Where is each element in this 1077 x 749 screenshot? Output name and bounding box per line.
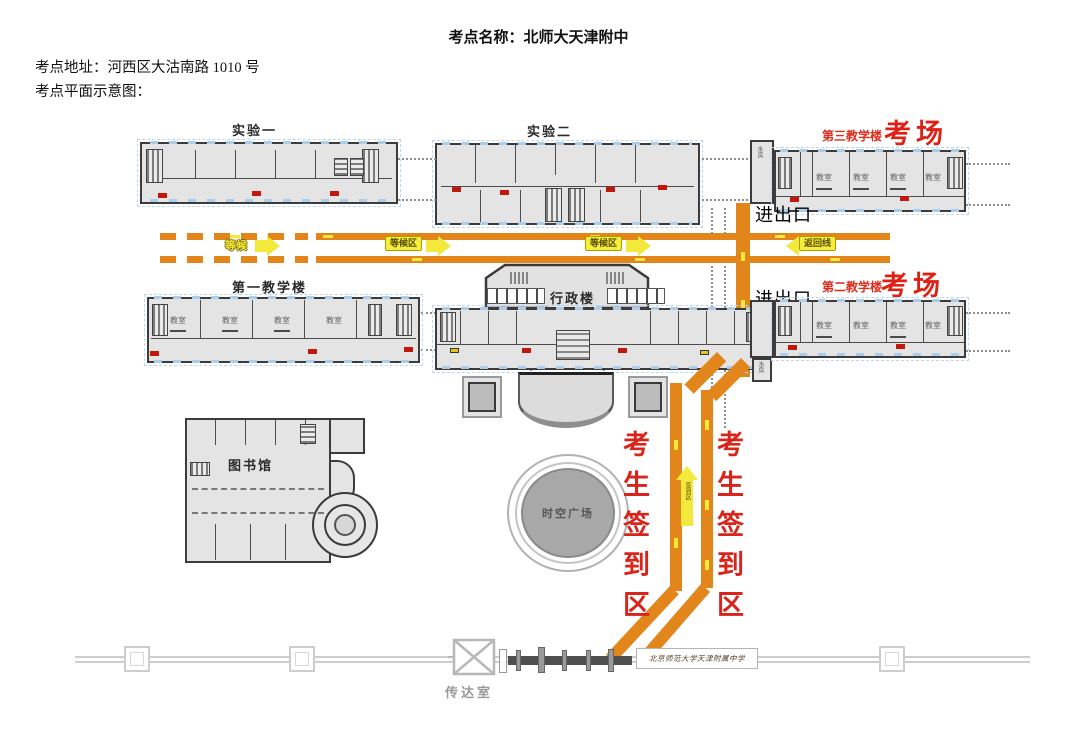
classroom-label: 教室 (925, 320, 941, 331)
door-mark (896, 344, 905, 349)
stairwell (350, 158, 364, 176)
classroom-label: 教室 (816, 320, 832, 331)
page-title: 考点名称：北师大天津附中 (0, 26, 1077, 47)
gate-mark (450, 348, 459, 353)
desk-line (890, 188, 906, 190)
route-tick (741, 252, 745, 261)
route-tick (323, 235, 333, 238)
stairwell (440, 312, 456, 342)
gate-post (538, 647, 545, 673)
gate-end-post (499, 649, 507, 673)
plaza-label: 时空广场 (542, 505, 594, 521)
door-mark (308, 349, 317, 354)
gate-post (562, 650, 567, 671)
door-mark (618, 348, 627, 353)
fence-post (124, 646, 150, 672)
gate-mark (700, 350, 709, 355)
wall-line (886, 302, 887, 342)
teaching3-connector (750, 140, 774, 204)
stairwell (368, 304, 382, 336)
door-mark (522, 348, 531, 353)
lab1-label: 实验一 (232, 120, 277, 139)
waiting-arrow (255, 240, 267, 252)
signin-arrow-tip (676, 466, 698, 480)
planter-square (628, 376, 668, 418)
window-strip (150, 199, 388, 202)
signin-column-left: 考生签到区 (620, 430, 647, 630)
library-wing (329, 418, 365, 454)
gate-post (516, 650, 521, 671)
wall-line (252, 300, 253, 338)
wall-line (356, 300, 357, 338)
window-strip (780, 299, 960, 302)
dotted-line (398, 158, 436, 160)
route-tick (412, 258, 422, 261)
signin-arrow-label: 签到区 (684, 482, 690, 500)
route-tick (705, 560, 709, 570)
gatehouse-label: 传达室 (445, 682, 493, 701)
stairwell (362, 149, 379, 183)
return-arrow-tip (786, 236, 799, 256)
wall-line (923, 302, 924, 342)
classroom-label: 教室 (853, 172, 869, 183)
signin-arrow-body: 签到区 (681, 480, 693, 526)
water-room-label: 水房 (757, 361, 763, 373)
waiting-area-label-1: 等候区 (385, 236, 422, 251)
wall-line (275, 150, 276, 178)
stairwell (396, 304, 412, 336)
waiting-area-arrow-1 (426, 240, 438, 252)
dotted-line (702, 199, 748, 201)
stairwell (190, 462, 210, 476)
corridor-line (776, 196, 964, 197)
wall-line (315, 150, 316, 178)
gatehouse-structure (446, 632, 502, 682)
stairwell (778, 306, 792, 336)
address-line: 考点地址：河西区大沽南路 1010 号 (35, 56, 260, 77)
wall-line (640, 190, 641, 222)
stairwell (568, 188, 585, 222)
planter-inner (634, 382, 662, 412)
wall-line (520, 190, 521, 222)
window-strip (154, 360, 412, 363)
classroom-label: 教室 (222, 315, 238, 326)
wall-line (285, 524, 286, 560)
classroom-label: 教室 (274, 315, 290, 326)
corridor-line (441, 186, 694, 187)
wall-line (200, 300, 201, 338)
library-rotunda-inner (334, 514, 356, 536)
admin-steps (556, 330, 590, 360)
corridor-line (437, 344, 763, 345)
admin-label: 行政楼 (548, 288, 597, 307)
classroom-label: 教室 (170, 315, 186, 326)
wall-line (595, 145, 596, 183)
stairwell (947, 157, 963, 189)
wall-line (304, 300, 305, 338)
dotted-line (711, 208, 713, 234)
dotted-line (724, 208, 726, 234)
window-strip (154, 296, 412, 299)
teaching3-label: 第三教学楼 (822, 127, 882, 144)
wall-line (516, 311, 517, 344)
waiting-area-arrow-2 (626, 240, 638, 252)
window-strip (442, 307, 758, 310)
wall-line (812, 302, 813, 342)
wall-line (245, 420, 246, 445)
window-strip (442, 142, 692, 145)
door-mark (900, 196, 909, 201)
dotted-line (702, 158, 748, 160)
route-tick (705, 500, 709, 510)
lab2-label: 实验二 (527, 121, 572, 140)
door-mark (500, 190, 509, 195)
door-mark (252, 191, 261, 196)
stairwell (334, 158, 348, 176)
wall-line (195, 150, 196, 178)
teaching2-examhall-label: 考场 (881, 264, 945, 303)
wall-line (235, 150, 236, 178)
desk-line (853, 188, 869, 190)
wall-line (515, 145, 516, 183)
door-mark (150, 351, 159, 356)
waiting-arrow-tip (267, 236, 280, 256)
desk-line (274, 330, 290, 332)
stairwell (545, 188, 562, 222)
door-mark (158, 193, 167, 198)
stairwell (947, 306, 963, 336)
classroom-label: 教室 (326, 315, 342, 326)
window-strip (780, 353, 960, 356)
wall-line (475, 145, 476, 183)
door-mark (606, 187, 615, 192)
wall-line (650, 311, 651, 344)
wall-line (923, 152, 924, 196)
wall-line (480, 190, 481, 222)
stairwell (152, 304, 168, 336)
library-dash-line (192, 512, 324, 514)
plaza-disc: 时空广场 (521, 468, 615, 558)
wall-line (706, 311, 707, 344)
route-tick (775, 235, 785, 238)
document-page: 考点名称：北师大天津附中 考点地址：河西区大沽南路 1010 号 考点平面示意图… (0, 0, 1077, 749)
door-mark (404, 347, 413, 352)
dotted-line (966, 350, 1010, 352)
wall-line (886, 152, 887, 196)
dotted-line (421, 312, 436, 314)
dotted-line (966, 163, 1010, 165)
wall-line (555, 145, 556, 175)
dotted-line (966, 312, 1010, 314)
fence-post (879, 646, 905, 672)
wall-line (250, 524, 251, 560)
wall-line (460, 311, 461, 344)
route-tick (705, 420, 709, 430)
door-mark (658, 185, 667, 190)
window-strip (442, 222, 692, 225)
wall-line (635, 145, 636, 183)
desk-line (816, 336, 832, 338)
teaching2-label: 第二教学楼 (822, 278, 882, 295)
door-mark (330, 191, 339, 196)
school-name-sign: 北京师范大学天津附属中学 (636, 648, 758, 669)
wall-line (215, 524, 216, 560)
admin-colonnade (487, 288, 545, 304)
teaching3-examhall-label: 考场 (884, 112, 948, 151)
window-strip (150, 141, 388, 144)
window-strip (780, 149, 960, 152)
route-tick (674, 538, 678, 548)
route-dashed-bottom (160, 256, 308, 263)
dotted-line (966, 204, 1010, 206)
fence-post (289, 646, 315, 672)
wall-line (215, 420, 216, 445)
planter-square (462, 376, 502, 418)
route-tick (674, 440, 678, 450)
wall-line (488, 311, 489, 344)
teaching1-label: 第一教学楼 (232, 277, 307, 296)
route-tick (830, 258, 840, 261)
wall-line (849, 302, 850, 342)
waiting-area-arrow-2-tip (638, 236, 651, 256)
desk-line (890, 336, 906, 338)
library-dash-line (192, 488, 324, 490)
waiting-area-arrow-1-tip (438, 236, 451, 256)
planter-inner (468, 382, 496, 412)
stage-structure (518, 372, 614, 428)
desk-line (816, 188, 832, 190)
classroom-label: 教室 (890, 172, 906, 183)
stairwell (300, 424, 316, 444)
map-caption: 考点平面示意图： (35, 80, 151, 101)
wall-line (734, 311, 735, 344)
waiting-area-label-2: 等候区 (585, 236, 622, 251)
stairwell (778, 157, 792, 189)
school-name-text: 北京师范大学天津附属中学 (649, 653, 745, 664)
wall-line (800, 302, 801, 342)
library-label: 图书馆 (228, 455, 273, 474)
door-mark (452, 187, 461, 192)
return-route-label: 返回线 (799, 236, 836, 251)
corridor-line (146, 178, 392, 179)
waiting-text: 等候 (225, 237, 247, 253)
classroom-label: 教室 (890, 320, 906, 331)
wall-line (678, 311, 679, 344)
corridor-line (776, 342, 964, 343)
wall-line (812, 152, 813, 196)
admin-colonnade (607, 288, 665, 304)
classroom-label: 教室 (853, 320, 869, 331)
wall-line (275, 420, 276, 445)
classroom-label: 教室 (925, 172, 941, 183)
desk-line (170, 330, 186, 332)
dotted-line (398, 199, 436, 201)
classroom-label: 教室 (816, 172, 832, 183)
teaching2-connector (750, 300, 774, 358)
door-mark (788, 345, 797, 350)
gate-post (586, 650, 591, 671)
dotted-line (421, 349, 436, 351)
gate-post (608, 649, 614, 672)
water-room-label: 水房 (756, 146, 762, 158)
wall-line (849, 152, 850, 196)
corridor-line (151, 338, 416, 339)
wall-line (800, 152, 801, 196)
desk-line (222, 330, 238, 332)
stairwell (146, 149, 163, 183)
signin-column-right: 考生签到区 (714, 430, 741, 630)
wall-line (600, 190, 601, 222)
entrance-exit-label-top: 进出口 (755, 201, 812, 227)
